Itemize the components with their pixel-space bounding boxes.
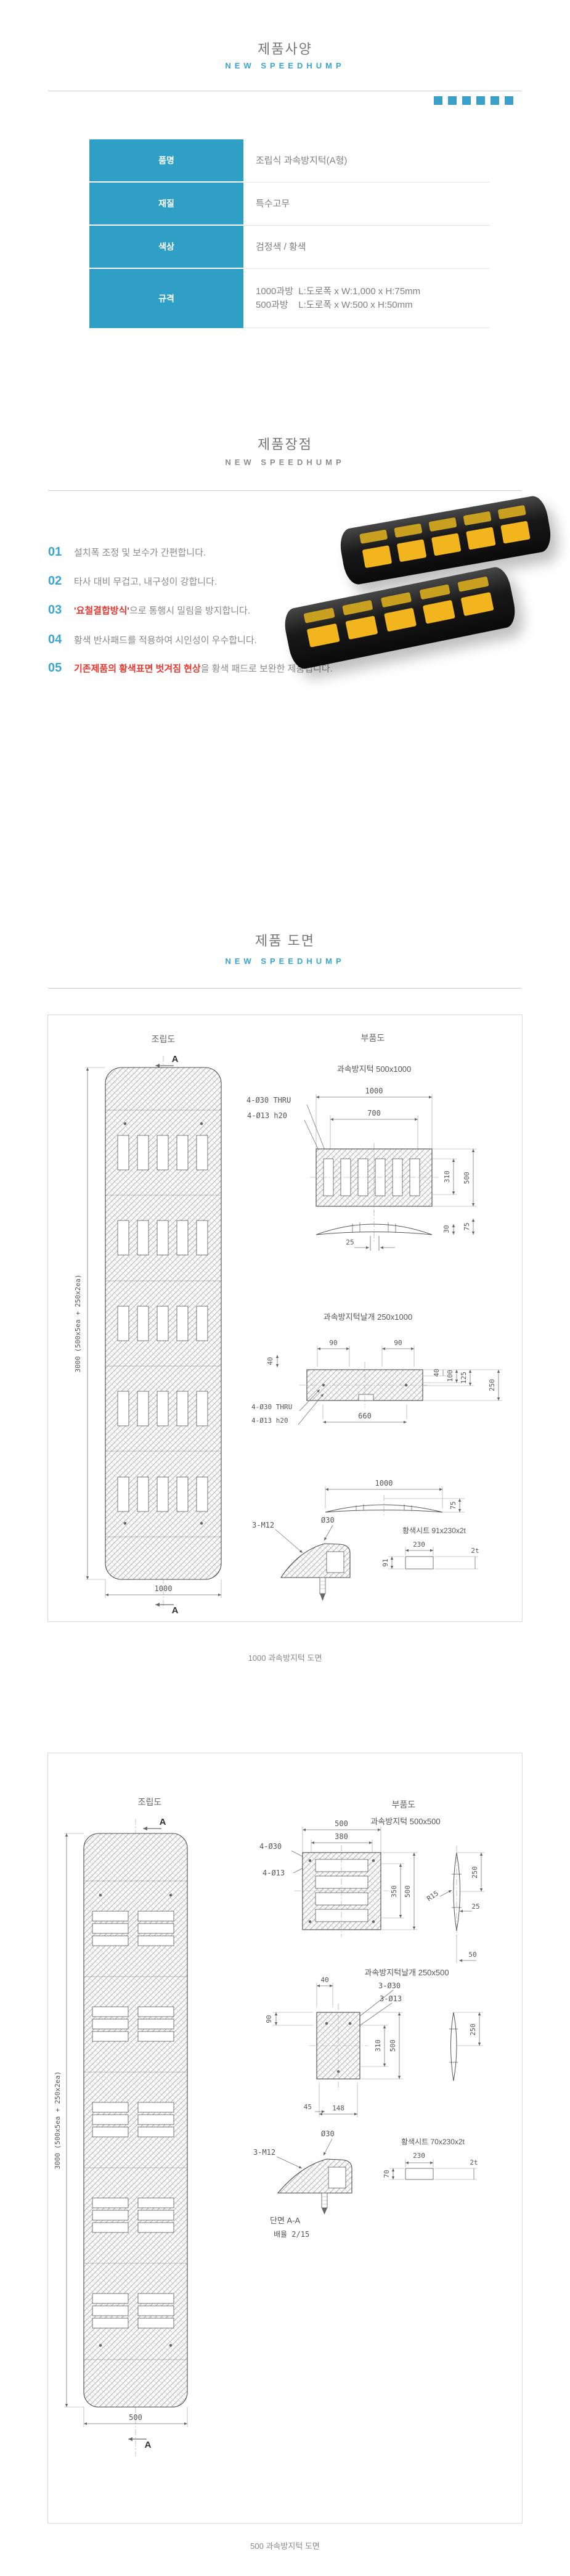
dim-75: 75	[463, 1222, 471, 1230]
feature-body: 타사 대비 무겁고, 내구성이 강합니다.	[74, 577, 217, 587]
spec-row-label: 재질	[89, 183, 243, 226]
dim-310: 310	[443, 1171, 451, 1183]
features-divider	[48, 490, 521, 491]
table-row: 색상 검정색 / 황색	[89, 226, 490, 269]
section-mark-a-top: A	[172, 1054, 179, 1064]
dim-30: 30	[442, 1225, 450, 1233]
dim-148: 148	[332, 2104, 344, 2112]
spec-row-label: 규격	[89, 269, 243, 328]
sheet-dim-91: 91	[381, 1558, 389, 1566]
spec-section-title: 제품사양	[0, 38, 570, 58]
spec-row-value: 특수고무	[243, 183, 490, 226]
dim-90: 90	[265, 2015, 273, 2023]
profile-dim-1000: 1000	[375, 1479, 393, 1488]
dim-25: 25	[346, 1238, 354, 1246]
part-title: 과속방지턱 500x1000	[337, 1064, 412, 1074]
section-mark-a-top: A	[160, 1817, 166, 1827]
drawings-section-subtitle: NEW SPEEDHUMP	[0, 957, 570, 966]
part-title: 과속방지턱 500x500	[370, 1817, 440, 1826]
anchor-screw	[320, 1578, 325, 1601]
hole-label-13: 4-Ø13 h20	[247, 1111, 287, 1120]
dim-90b: 90	[394, 1339, 402, 1347]
overall-length-dim: 3000 (500x5ea + 250x2ea)	[74, 1275, 82, 1373]
spec-value-line1: 1000과방 L:도로폭 x W:1,000 x H:75mm	[256, 285, 490, 298]
features-section-subtitle: NEW SPEEDHUMP	[0, 458, 570, 467]
profile-dim-75: 75	[449, 1501, 457, 1509]
dim-40-left: 40	[266, 1357, 274, 1365]
wing-hole-13: 3-Ø13	[380, 1994, 402, 2003]
drawing-box-1000: 조립도 A 3000 (500x5ea + 250x2ea) 1000 A 부품…	[47, 1014, 523, 1622]
hole-dia-30: Ø30	[321, 2130, 335, 2138]
dim-40: 40	[320, 1976, 328, 1984]
hole-label-30: 4-Ø30	[259, 1842, 282, 1851]
feature-number: 01	[48, 545, 74, 559]
section-note: 단면 A-A	[270, 2216, 301, 2225]
parts-view-500: 부품도 과속방지턱 500x500 500 380 4-Ø30 4-Ø13 35…	[253, 1800, 485, 2239]
feature-text: 황색 반사패드를 적용하여 시인성이 우수합니다.	[74, 634, 257, 648]
feature-body: 황색 반사패드를 적용하여 시인성이 우수합니다.	[74, 635, 257, 646]
dim-500: 500	[335, 1819, 348, 1828]
overall-length-dim: 3000 (500x5ea + 250x2ea)	[54, 2072, 62, 2170]
wing-title: 과속방지턱날개 250x1000	[324, 1312, 412, 1322]
wing-title: 과속방지턱날개 250x500	[364, 1968, 449, 1977]
drawing-caption-500: 500 과속방지턱 도면	[0, 2540, 570, 2551]
wing-hole-30: 4-Ø30 THRU	[251, 1403, 292, 1411]
spec-value-text: 조립식 과속방지턱(A형)	[256, 154, 490, 168]
spec-row-value: 1000과방 L:도로폭 x W:1,000 x H:75mm 500과방 L:…	[243, 269, 490, 328]
assembly-view-500: 조립도 A 3000 (500x5ea + 250x2ea) 500 A	[54, 1797, 187, 2456]
radius-r15: R15	[425, 1889, 440, 1903]
dim-90a: 90	[329, 1339, 337, 1347]
dim-50: 50	[468, 1951, 476, 1959]
feature-body: 으로 통행시 밀림을 방지합니다.	[129, 606, 250, 616]
dim-310: 310	[374, 2039, 382, 2052]
feature-text: 타사 대비 무겁고, 내구성이 강합니다.	[74, 575, 217, 589]
square-icon	[434, 96, 442, 105]
feature-number: 05	[48, 661, 74, 675]
anchor-label-m12: 3-M12	[253, 2148, 275, 2157]
table-row: 재질 특수고무	[89, 183, 490, 226]
sheet-dim-2t: 2t	[471, 1547, 479, 1555]
assembly-label: 조립도	[152, 1034, 176, 1044]
dim-380: 380	[335, 1832, 348, 1841]
dim-250: 250	[488, 1379, 496, 1391]
parts-view-1000: 부품도 과속방지턱 500x1000 1000 700 4-Ø30 THRU 4…	[246, 1033, 502, 1601]
dim-125: 125	[460, 1372, 468, 1384]
dim-700: 700	[367, 1109, 381, 1117]
hole-dia-30: Ø30	[321, 1516, 335, 1525]
feature-number: 02	[48, 574, 74, 588]
sheet-label: 황색시트 91x230x2t	[402, 1526, 466, 1535]
dim-40-right: 40	[433, 1368, 441, 1376]
spec-divider	[48, 91, 521, 91]
hole-label-13: 4-Ø13	[263, 1869, 285, 1877]
drawing-box-500: 조립도 A 3000 (500x5ea + 250x2ea) 500 A 부품도…	[47, 1753, 523, 2524]
sheet-dim-70: 70	[383, 2170, 391, 2178]
dim-1000: 1000	[365, 1087, 383, 1095]
dim-45: 45	[304, 2103, 312, 2111]
anchor-screw	[322, 2193, 327, 2215]
dim-500c: 500	[389, 2039, 397, 2052]
square-icon	[448, 96, 457, 105]
spec-value-text: 특수고무	[256, 197, 490, 211]
square-icon	[505, 96, 513, 105]
dim-660: 660	[358, 1412, 372, 1420]
wing-hole-30: 3-Ø30	[378, 1981, 401, 1990]
parts-label: 부품도	[361, 1033, 385, 1043]
dim-350: 350	[390, 1885, 398, 1898]
drawings-section-title: 제품 도면	[0, 930, 570, 950]
dim-500: 500	[463, 1172, 471, 1184]
accent-squares	[434, 96, 513, 105]
feature-highlight: '요철결합방식'	[74, 606, 129, 616]
drawings-divider	[48, 988, 521, 989]
sheet-dim-2t: 2t	[470, 2158, 478, 2167]
drawing-500-svg: 조립도 A 3000 (500x5ea + 250x2ea) 500 A 부품도…	[48, 1753, 522, 2523]
speedhump-photo-bottom	[282, 565, 518, 671]
drawing-1000-svg: 조립도 A 3000 (500x5ea + 250x2ea) 1000 A 부품…	[48, 1015, 522, 1621]
anchor-label-m12: 3-M12	[252, 1521, 274, 1529]
parts-label: 부품도	[392, 1800, 416, 1809]
product-page: { "page": {"accent":"#3aa5d2","table_hea…	[0, 0, 570, 2576]
width-dim: 1000	[155, 1584, 173, 1593]
feature-number: 03	[48, 603, 74, 617]
feature-number: 04	[48, 633, 74, 647]
spec-section-subtitle: NEW SPEEDHUMP	[0, 61, 570, 70]
spec-value-text: 검정색 / 황색	[256, 241, 490, 254]
dim-25: 25	[471, 1903, 479, 1911]
drawing-caption-1000: 1000 과속방지턱 도면	[0, 1652, 570, 1663]
assembly-view-1000: 조립도 A 3000 (500x5ea + 250x2ea) 1000 A	[74, 1034, 221, 1616]
scale-note: 배율 2/15	[274, 2230, 309, 2239]
spec-row-label: 품명	[89, 139, 243, 183]
spec-table: 품명 조립식 과속방지턱(A형) 재질 특수고무 색상 검정색 / 황색 규격 …	[89, 139, 490, 328]
table-row: 규격 1000과방 L:도로폭 x W:1,000 x H:75mm 500과방…	[89, 269, 490, 328]
sheet-label: 황색시트 70x230x2t	[401, 2138, 465, 2146]
dim-250b: 250	[469, 2023, 477, 2036]
spec-row-label: 색상	[89, 226, 243, 269]
width-dim: 500	[129, 2413, 142, 2422]
table-row: 품명 조립식 과속방지턱(A형)	[89, 139, 490, 183]
wing-hole-13: 4-Ø13 h20	[251, 1417, 288, 1425]
product-photo	[280, 493, 564, 697]
speedhump-photo-top	[338, 494, 554, 586]
feature-text: '요철결합방식'으로 통행시 밀림을 방지합니다.	[74, 604, 250, 618]
hole-label-30: 4-Ø30 THRU	[246, 1096, 291, 1105]
spec-value-line2: 500과방 L:도로폭 x W:500 x H:50mm	[256, 298, 490, 312]
spec-row-value: 조립식 과속방지턱(A형)	[243, 139, 490, 183]
section-mark-a-bottom: A	[145, 2440, 152, 2450]
feature-text: 설치폭 조정 및 보수가 간편합니다.	[74, 546, 206, 560]
feature-highlight: 기존제품의 황색표면 벗겨짐 현상	[74, 664, 201, 674]
square-icon	[476, 96, 485, 105]
assembly-label: 조립도	[138, 1797, 162, 1807]
dim-100: 100	[446, 1370, 454, 1382]
sheet-dim-230: 230	[413, 1541, 425, 1549]
spec-row-value: 검정색 / 황색	[243, 226, 490, 269]
features-section-title: 제품장점	[0, 434, 570, 453]
feature-body: 설치폭 조정 및 보수가 간편합니다.	[74, 548, 206, 558]
square-icon	[462, 96, 471, 105]
square-icon	[491, 96, 499, 105]
sheet-dim-230: 230	[413, 2152, 425, 2160]
section-mark-a-bottom: A	[172, 1605, 179, 1616]
dim-500b: 500	[404, 1885, 412, 1898]
dim-250: 250	[471, 1866, 479, 1879]
